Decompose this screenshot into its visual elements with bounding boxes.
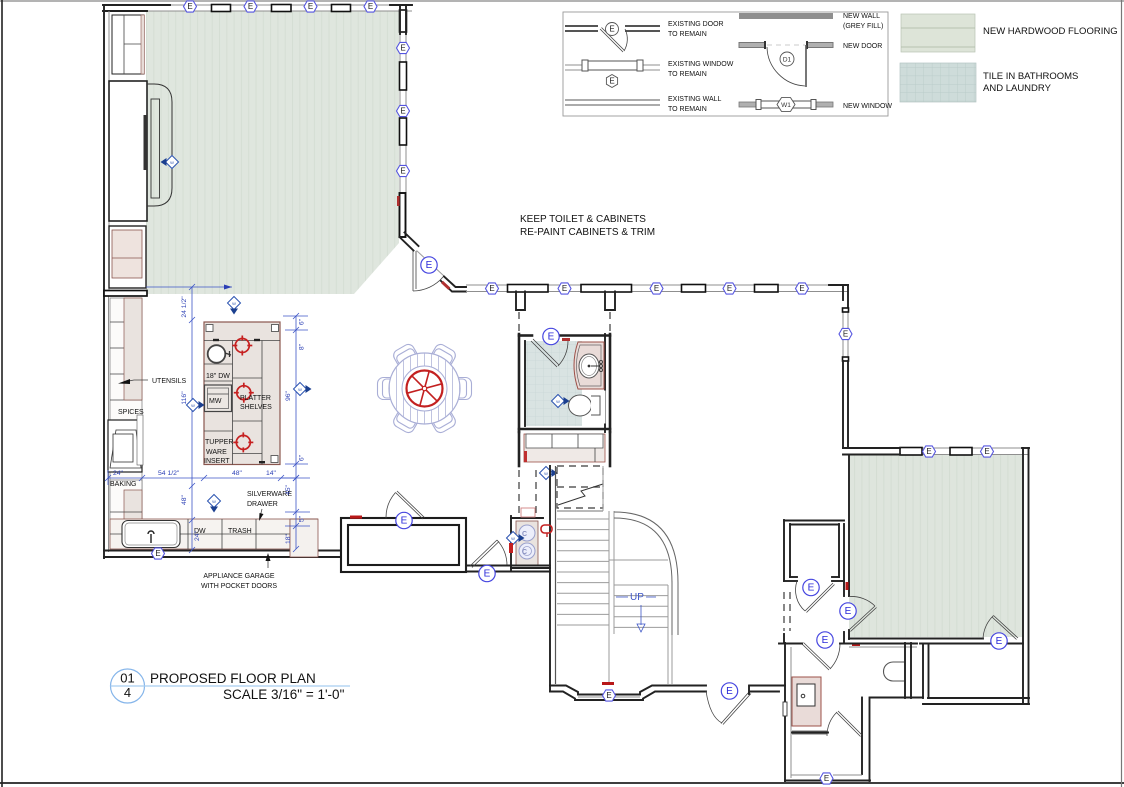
- svg-text:UTENSILS: UTENSILS: [152, 378, 187, 385]
- svg-text:E: E: [308, 2, 313, 11]
- svg-text:W: W: [170, 160, 174, 165]
- svg-text:UP: UP: [630, 592, 644, 603]
- svg-text:14": 14": [266, 470, 277, 477]
- svg-text:AND LAUNDRY: AND LAUNDRY: [983, 83, 1052, 94]
- svg-text:54 1/2": 54 1/2": [158, 470, 180, 477]
- svg-text:TRASH: TRASH: [228, 528, 252, 535]
- svg-text:45": 45": [285, 484, 292, 495]
- svg-text:18": 18": [285, 533, 292, 544]
- svg-text:W1: W1: [781, 102, 791, 109]
- svg-text:KEEP TOILET & CABINETS: KEEP TOILET & CABINETS: [520, 214, 646, 225]
- svg-text:WITH POCKET DOORS: WITH POCKET DOORS: [201, 583, 277, 590]
- svg-text:INSERT: INSERT: [204, 458, 230, 465]
- svg-text:RE-PAINT CABINETS & TRIM: RE-PAINT CABINETS & TRIM: [520, 227, 655, 238]
- svg-text:116": 116": [181, 391, 188, 405]
- svg-text:E: E: [400, 107, 405, 116]
- svg-text:TO REMAIN: TO REMAIN: [668, 71, 707, 78]
- svg-text:BAKING: BAKING: [110, 481, 136, 488]
- svg-text:TUPPER: TUPPER: [205, 439, 233, 446]
- svg-text:E: E: [996, 636, 1003, 647]
- svg-text:NEW HARDWOOD FLOORING: NEW HARDWOOD FLOORING: [983, 26, 1118, 37]
- svg-text:EXISTING WINDOW: EXISTING WINDOW: [668, 61, 734, 68]
- svg-text:PROPOSED FLOOR PLAN: PROPOSED FLOOR PLAN: [150, 671, 316, 686]
- svg-text:18" DW: 18" DW: [206, 373, 230, 380]
- svg-text:MW: MW: [209, 398, 222, 405]
- svg-text:C: C: [522, 549, 527, 556]
- svg-text:(GREY FILL): (GREY FILL): [843, 23, 883, 30]
- svg-text:W: W: [212, 499, 216, 504]
- svg-text:E: E: [606, 691, 611, 700]
- svg-text:E: E: [155, 549, 160, 558]
- svg-text:E: E: [489, 284, 494, 293]
- svg-text:WARE: WARE: [206, 449, 227, 456]
- svg-text:5": 5": [299, 515, 306, 522]
- svg-text:E: E: [845, 606, 852, 617]
- svg-text:4: 4: [124, 685, 131, 700]
- svg-text:SPICES: SPICES: [118, 409, 144, 416]
- svg-text:W: W: [232, 301, 236, 306]
- svg-text:E: E: [187, 2, 192, 11]
- svg-text:E: E: [843, 330, 848, 339]
- svg-text:SCALE 3/16" = 1'-0": SCALE 3/16" = 1'-0": [223, 687, 345, 702]
- svg-text:TO REMAIN: TO REMAIN: [668, 106, 707, 113]
- svg-text:E: E: [562, 284, 567, 293]
- svg-text:E: E: [400, 44, 405, 53]
- svg-text:E: E: [609, 25, 614, 34]
- svg-text:W: W: [511, 536, 515, 541]
- svg-text:E: E: [824, 774, 829, 783]
- svg-text:E: E: [726, 686, 733, 697]
- svg-text:01: 01: [120, 671, 134, 686]
- svg-text:E: E: [368, 2, 373, 11]
- svg-text:EXISTING WALL: EXISTING WALL: [668, 96, 722, 103]
- svg-text:NEW DOOR: NEW DOOR: [843, 43, 882, 50]
- svg-text:6": 6": [299, 318, 306, 325]
- svg-text:8": 8": [299, 343, 306, 350]
- svg-text:W: W: [556, 399, 560, 404]
- svg-text:E: E: [484, 569, 491, 580]
- svg-text:24": 24": [194, 530, 201, 541]
- svg-text:24": 24": [113, 470, 124, 477]
- svg-text:E: E: [248, 2, 253, 11]
- svg-text:W: W: [298, 387, 302, 392]
- svg-text:6": 6": [299, 454, 306, 461]
- svg-text:TILE IN BATHROOMS: TILE IN BATHROOMS: [983, 71, 1078, 82]
- svg-text:E: E: [654, 284, 659, 293]
- svg-text:DRAWER: DRAWER: [247, 501, 278, 508]
- svg-text:EXISTING DOOR: EXISTING DOOR: [668, 21, 724, 28]
- svg-text:E: E: [548, 332, 555, 343]
- svg-text:24 1/2": 24 1/2": [181, 296, 188, 318]
- svg-text:APPLIANCE GARAGE: APPLIANCE GARAGE: [203, 573, 275, 580]
- svg-text:48": 48": [232, 470, 243, 477]
- svg-text:E: E: [400, 167, 405, 176]
- svg-text:SHELVES: SHELVES: [240, 404, 272, 411]
- svg-text:NEW WINDOW: NEW WINDOW: [843, 103, 892, 110]
- svg-text:E: E: [799, 284, 804, 293]
- svg-text:E: E: [808, 583, 815, 594]
- svg-text:96": 96": [285, 390, 292, 401]
- svg-text:W: W: [544, 471, 548, 476]
- svg-text:E: E: [727, 284, 732, 293]
- svg-text:E: E: [401, 516, 408, 527]
- svg-text:48": 48": [181, 494, 188, 505]
- svg-text:D1: D1: [783, 57, 792, 64]
- svg-text:E: E: [822, 635, 829, 646]
- svg-text:PLATTER: PLATTER: [240, 395, 271, 402]
- svg-text:E: E: [609, 77, 614, 86]
- svg-text:E: E: [426, 260, 433, 271]
- svg-text:E: E: [984, 447, 989, 456]
- svg-text:TO REMAIN: TO REMAIN: [668, 31, 707, 38]
- svg-text:W: W: [191, 403, 195, 408]
- svg-text:NEW WALL: NEW WALL: [843, 13, 880, 20]
- svg-text:E: E: [926, 447, 931, 456]
